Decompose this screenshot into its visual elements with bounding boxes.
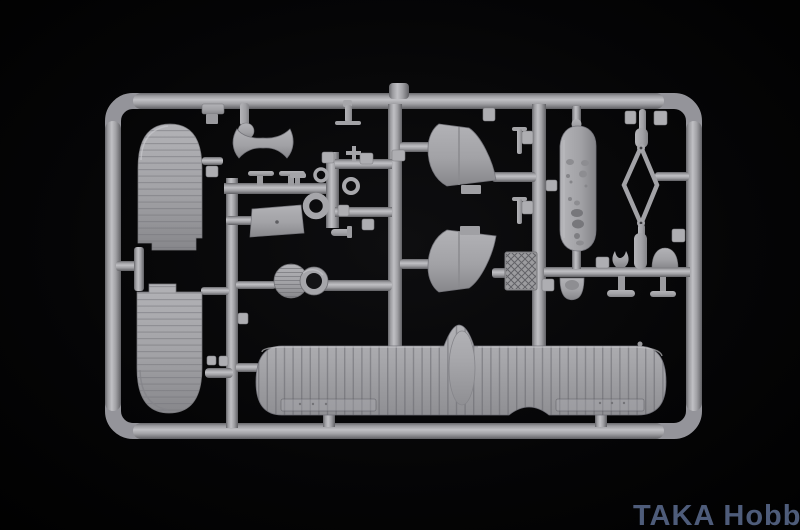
gate-pad xyxy=(546,180,557,191)
pontoon-float-lower xyxy=(130,280,210,420)
frame-bottom-rail xyxy=(133,423,664,439)
tail-fin-upper xyxy=(428,124,496,194)
watermark-text: TAKA Hobby xyxy=(633,500,800,530)
fuselage-detail xyxy=(566,174,570,178)
paddle-strut xyxy=(248,171,274,176)
gate-pad xyxy=(322,152,334,163)
bracket-part xyxy=(202,104,224,114)
gate-pad xyxy=(362,219,374,230)
gate-pad xyxy=(542,279,554,291)
lower-wing xyxy=(250,320,672,420)
runner-segment xyxy=(134,247,144,291)
fin-tab xyxy=(460,226,480,235)
fuselage-detail xyxy=(576,241,584,246)
runner-segment xyxy=(532,104,546,351)
engine-cowling-assembly xyxy=(270,262,328,302)
radiator-mesh xyxy=(506,253,536,289)
t-fitting-stem xyxy=(295,178,300,185)
runner-segment xyxy=(318,280,392,291)
diamond-knob-hole xyxy=(640,222,643,225)
gate-pad xyxy=(360,153,373,164)
fuselage-half xyxy=(560,126,596,251)
runner-segment xyxy=(492,172,536,182)
fork-fitting xyxy=(612,251,628,267)
diamond-bottom-capsule xyxy=(634,233,647,269)
runner-segment xyxy=(572,249,581,269)
gate-pad xyxy=(206,166,218,177)
wing-dot xyxy=(599,402,601,404)
gate-pad xyxy=(207,356,216,365)
gate-pad xyxy=(672,229,685,242)
fuselage-detail xyxy=(574,201,580,206)
gate-pad xyxy=(654,111,667,125)
fuselage-detail xyxy=(566,159,574,165)
runner-segment xyxy=(236,281,276,289)
diamond-outline xyxy=(624,147,657,224)
tail-fin-lower xyxy=(428,226,496,292)
t-fitting xyxy=(290,173,306,178)
bracket-part xyxy=(206,114,218,124)
wing-dot xyxy=(623,402,625,404)
fuselage-detail xyxy=(574,233,580,239)
float-ribs xyxy=(130,280,210,420)
torpedo-fin xyxy=(347,226,352,238)
wing-tip-nub xyxy=(638,342,643,347)
float-gate-stub xyxy=(202,157,223,165)
strut-blade xyxy=(517,199,522,224)
pontoon-float-upper xyxy=(130,118,223,258)
runner-segment xyxy=(205,368,233,378)
t-fitting-bar xyxy=(650,291,676,297)
panel-hole xyxy=(275,220,279,224)
sprue-photo xyxy=(0,0,800,530)
strut-blade xyxy=(517,129,522,154)
runner-segment xyxy=(655,172,689,181)
cowling-ring-hole xyxy=(306,273,322,289)
fin-body xyxy=(428,230,496,292)
wing-dot xyxy=(312,403,314,405)
frame-feed-stub xyxy=(389,83,409,99)
ring-part-medium xyxy=(344,179,358,193)
runner-segment xyxy=(226,216,254,225)
fuselage-detail xyxy=(579,171,587,178)
gate-pad xyxy=(596,257,609,268)
runner-segment xyxy=(544,267,690,277)
gate-pad xyxy=(219,356,228,366)
runner-segment xyxy=(400,259,432,269)
ring-part-small xyxy=(315,169,327,181)
fuselage-detail xyxy=(581,160,589,166)
runner-segment xyxy=(226,178,238,428)
runner-segment xyxy=(388,104,402,350)
hanging-fitting-bar xyxy=(335,121,361,125)
float-ribs xyxy=(130,118,210,258)
t-fitting-stem xyxy=(660,277,666,293)
gate-pad xyxy=(522,201,533,214)
bomb-wing xyxy=(607,290,635,297)
frame-right-rail xyxy=(686,121,702,411)
bomb-stem xyxy=(618,276,625,292)
wing-aileron-right xyxy=(556,399,644,411)
fuselage-cockpit xyxy=(571,209,583,217)
fuselage-detail xyxy=(568,197,572,201)
fuselage-cockpit xyxy=(572,220,584,229)
runner-segment xyxy=(201,287,229,295)
checkered-radiator xyxy=(505,252,537,290)
cross-fitting-bar xyxy=(346,151,361,155)
wing-center-fairing xyxy=(449,331,475,405)
runner-segment xyxy=(224,183,332,194)
gate-pad xyxy=(392,150,405,161)
fuselage-detail xyxy=(585,185,588,188)
diamond-rigging-frame xyxy=(624,109,657,269)
headrest-dome xyxy=(652,248,678,268)
wing-dot xyxy=(611,402,613,404)
gate-pad xyxy=(338,205,349,216)
wing-aileron-left xyxy=(281,399,376,411)
photo-background: TAKA Hobby xyxy=(0,0,800,530)
donut-part xyxy=(306,196,326,216)
gate-pad xyxy=(483,108,495,121)
flask-stub xyxy=(240,103,249,126)
wing-dot xyxy=(299,403,301,405)
gate-pad xyxy=(522,131,533,144)
diamond-knob-hole xyxy=(640,147,643,150)
fin-tab xyxy=(461,185,481,194)
paddle-strut-stem xyxy=(257,176,263,185)
gate-pad xyxy=(625,111,636,124)
fuselage-body xyxy=(560,126,596,251)
hanging-fitting-body xyxy=(345,105,352,123)
gate-pad xyxy=(238,313,248,324)
fin-body xyxy=(428,124,496,186)
fuselage-detail xyxy=(570,181,573,184)
cowl-saddle-part xyxy=(233,129,293,158)
wing-dot xyxy=(325,403,327,405)
seat-hollow xyxy=(565,280,579,290)
